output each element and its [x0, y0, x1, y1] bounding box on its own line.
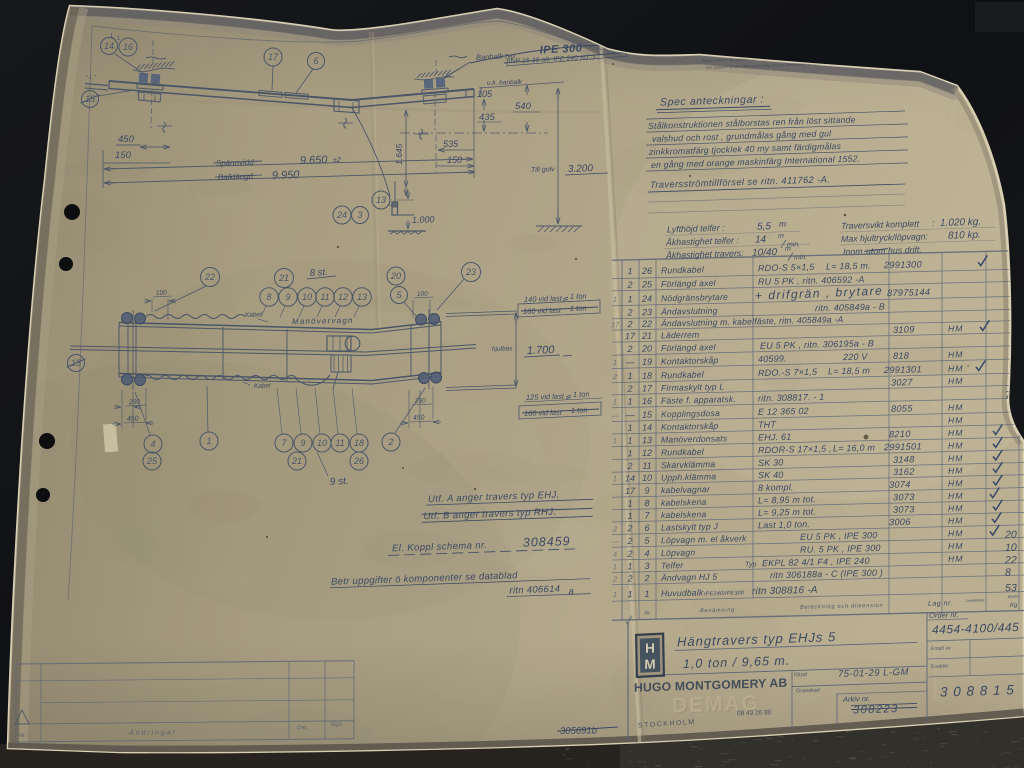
svg-text:2: 2	[626, 574, 632, 584]
svg-text:Benämning: Benämning	[700, 607, 735, 614]
svg-text:kabelskena: kabelskena	[661, 509, 706, 520]
svg-text:17: 17	[642, 383, 653, 393]
svg-text:8 kompl.: 8 kompl.	[758, 482, 794, 493]
svg-text:1 ton: 1 ton	[573, 389, 590, 399]
svg-text:Löpvagn: Löpvagn	[661, 547, 695, 558]
svg-text:ritn 406614: ritn 406614	[509, 584, 560, 597]
svg-text:2: 2	[626, 523, 632, 533]
svg-text:Ersatt av: Ersatt av	[931, 645, 951, 652]
svg-text:5,5: 5,5	[757, 221, 771, 232]
svg-text:4: 4	[613, 550, 617, 559]
svg-text:14: 14	[642, 422, 652, 432]
svg-text:Kopplingsdosa: Kopplingsdosa	[661, 408, 720, 419]
svg-text:Rundkabel: Rundkabel	[661, 264, 705, 275]
svg-text:Lag nr.: Lag nr.	[928, 600, 953, 608]
svg-text:Skarvklämma: Skarvklämma	[661, 459, 715, 470]
svg-text:17: 17	[625, 331, 636, 341]
svg-text:53: 53	[1005, 582, 1017, 594]
svg-text:L= 18,5 m.: L= 18,5 m.	[826, 261, 871, 272]
svg-text:Kabel: Kabel	[245, 311, 262, 319]
svg-text:1: 1	[613, 474, 617, 483]
svg-text:1: 1	[613, 436, 617, 445]
svg-text:HM: HM	[948, 440, 963, 450]
svg-text:1.700: 1.700	[527, 344, 556, 357]
svg-text:20: 20	[390, 271, 401, 281]
svg-text:308459: 308459	[523, 534, 571, 550]
svg-text:20: 20	[641, 343, 652, 353]
svg-text:Levereras: Levereras	[966, 597, 986, 602]
svg-text:1: 1	[613, 562, 617, 571]
svg-text:RU. 5 PK , IPE 300: RU. 5 PK , IPE 300	[800, 543, 881, 555]
svg-text:—: —	[625, 410, 636, 420]
svg-text:Lastskylt typ J: Lastskylt typ J	[661, 521, 718, 532]
svg-text:HM: HM	[948, 428, 963, 438]
svg-text:8210: 8210	[889, 429, 911, 440]
svg-text:2: 2	[626, 307, 632, 317]
svg-text:2991301: 2991301	[883, 364, 922, 375]
svg-text:Kontaktorskåp: Kontaktorskåp	[661, 421, 719, 432]
svg-text:8: 8	[1005, 567, 1011, 579]
svg-text:4: 4	[644, 548, 649, 558]
svg-text:810 kp.: 810 kp.	[948, 230, 981, 242]
svg-text:6: 6	[313, 56, 318, 66]
svg-text:1 ton: 1 ton	[570, 291, 587, 301]
svg-text:RDO-S 5×1,5: RDO-S 5×1,5	[758, 262, 815, 273]
svg-text:2: 2	[626, 319, 632, 329]
svg-text:HM: HM	[948, 503, 963, 513]
svg-text:2: 2	[626, 384, 632, 394]
svg-text:u.k. banbalk: u.k. banbalk	[487, 79, 523, 87]
svg-text:Upph.klämma: Upph.klämma	[661, 471, 716, 482]
svg-text:10: 10	[642, 473, 652, 483]
svg-text:THT: THT	[758, 419, 777, 429]
svg-text:1: 1	[627, 435, 632, 445]
svg-text:1.000: 1.000	[412, 214, 435, 225]
svg-text:Till golv: Till golv	[531, 166, 555, 174]
svg-text:HM: HM	[948, 491, 963, 501]
svg-text:9: 9	[300, 438, 305, 448]
svg-text:9: 9	[285, 292, 290, 302]
svg-text:Läderrem: Läderrem	[661, 330, 699, 341]
svg-text:Kg: Kg	[1010, 603, 1018, 609]
svg-text:Order nr.: Order nr.	[929, 610, 959, 620]
svg-text:220 V: 220 V	[842, 352, 868, 363]
svg-text:3.200: 3.200	[568, 163, 594, 175]
svg-text:SK 40: SK 40	[758, 470, 784, 481]
svg-text:Ersätter: Ersätter	[931, 663, 949, 670]
svg-text:kabelvagnar: kabelvagnar	[661, 484, 711, 495]
svg-text:14: 14	[755, 234, 767, 245]
svg-text:Nödgränsbrytare: Nödgränsbrytare	[661, 292, 728, 304]
svg-text:9: 9	[644, 486, 649, 496]
svg-text:8055: 8055	[891, 403, 913, 414]
svg-text:13: 13	[357, 292, 367, 302]
svg-text:HM: HM	[948, 465, 963, 475]
svg-text:2: 2	[612, 575, 618, 584]
svg-text:2: 2	[626, 461, 632, 471]
svg-text:1: 1	[627, 423, 632, 433]
svg-text:1: 1	[627, 396, 632, 406]
svg-text:Rundkabel: Rundkabel	[661, 369, 705, 380]
svg-text:21: 21	[641, 331, 652, 341]
svg-text:1: 1	[627, 294, 632, 304]
svg-text:1: 1	[627, 266, 632, 276]
svg-text:2: 2	[626, 549, 632, 559]
svg-text:Ritad: Ritad	[794, 672, 807, 678]
svg-text:1: 1	[627, 448, 632, 458]
svg-text:23: 23	[465, 267, 476, 277]
svg-text:Brutto: Brutto	[1008, 594, 1019, 599]
svg-text:9.950: 9.950	[272, 169, 301, 182]
svg-text:435: 435	[479, 112, 496, 123]
svg-text:IPE240/IPE300: IPE240/IPE300	[704, 590, 745, 597]
svg-text:L= 9,25 m tot.: L= 9,25 m tot.	[758, 507, 816, 518]
svg-text:540: 540	[515, 101, 532, 112]
svg-text:hjulbas: hjulbas	[492, 345, 514, 353]
svg-text:Dat.: Dat.	[297, 725, 308, 731]
svg-text:305691b: 305691b	[560, 725, 597, 737]
svg-text:18: 18	[354, 438, 364, 448]
svg-text:2: 2	[612, 372, 618, 381]
svg-text:Nr: Nr	[19, 733, 25, 739]
svg-text:9.650: 9.650	[300, 154, 329, 167]
svg-text:Sign.: Sign.	[330, 722, 344, 728]
svg-text:26: 26	[353, 456, 364, 466]
svg-text:Manövervagn: Manövervagn	[292, 316, 354, 326]
svg-text:Arkiv nr.: Arkiv nr.	[842, 694, 870, 704]
svg-text:4: 4	[150, 439, 155, 449]
svg-text:450: 450	[118, 134, 135, 145]
svg-text:Manöverdonsats: Manöverdonsats	[661, 433, 728, 445]
svg-text:HM: HM	[948, 541, 963, 551]
svg-text:21: 21	[278, 273, 289, 283]
svg-text:Ä n d r i n g a r: Ä n d r i n g a r	[128, 728, 176, 736]
svg-text:2991300: 2991300	[883, 259, 922, 270]
svg-text:14: 14	[104, 41, 114, 51]
svg-text:10: 10	[317, 438, 327, 448]
svg-text:HM: HM	[948, 554, 963, 564]
svg-text:40599.: 40599.	[758, 353, 787, 364]
svg-text:3162: 3162	[893, 467, 915, 478]
svg-text:L= 18,5 m: L= 18,5 m	[828, 365, 870, 376]
svg-text:2: 2	[387, 437, 393, 447]
svg-text:3148: 3148	[893, 454, 915, 465]
svg-text:1: 1	[117, 36, 120, 42]
svg-text:20: 20	[1004, 529, 1017, 541]
svg-text:1: 1	[613, 358, 617, 367]
svg-text:150: 150	[115, 150, 132, 161]
svg-text:16: 16	[642, 396, 652, 406]
svg-text:Lyfthöjd telfer :: Lyfthöjd telfer :	[667, 223, 725, 235]
svg-text:2: 2	[626, 344, 632, 354]
svg-text:Rundkabel: Rundkabel	[661, 447, 705, 458]
svg-text:1: 1	[627, 371, 632, 381]
svg-text:17: 17	[268, 52, 279, 62]
svg-text:Kontaktorskåp: Kontaktorskåp	[661, 355, 719, 366]
svg-text:E 12 365 02: E 12 365 02	[758, 406, 809, 417]
svg-text:17: 17	[611, 320, 620, 329]
svg-text:" L ": " L "	[86, 75, 97, 81]
svg-text:8: 8	[266, 292, 271, 302]
svg-text:19: 19	[642, 357, 652, 367]
svg-text:M: M	[644, 657, 655, 672]
svg-text:m: m	[785, 246, 791, 253]
svg-text:4454-4100/445: 4454-4100/445	[932, 620, 1019, 637]
svg-text:23: 23	[641, 307, 652, 317]
svg-text:Kabel: Kabel	[254, 382, 271, 390]
svg-text:—: —	[610, 411, 619, 420]
svg-text:1: 1	[644, 589, 649, 599]
svg-text:13: 13	[642, 435, 652, 445]
svg-text:3: 3	[357, 210, 362, 220]
svg-text:L= 16,0 m: L= 16,0 m	[833, 443, 875, 454]
svg-text:250: 250	[414, 397, 427, 405]
svg-text:1: 1	[627, 561, 632, 571]
svg-text:Last 1,0 ton.: Last 1,0 ton.	[758, 519, 810, 530]
svg-text:10: 10	[302, 292, 312, 302]
svg-text:Granskad: Granskad	[796, 688, 820, 695]
svg-text:Ändvagn HJ 5: Ändvagn HJ 5	[660, 572, 717, 583]
svg-text:Huvudbalk: Huvudbalk	[661, 587, 704, 598]
svg-text:24: 24	[336, 210, 347, 220]
svg-text:1: 1	[206, 436, 211, 446]
svg-text:25: 25	[146, 456, 158, 466]
svg-text:ritn 308816 -A: ritn 308816 -A	[752, 585, 818, 598]
svg-text:818: 818	[893, 351, 910, 361]
svg-text:11: 11	[642, 461, 651, 471]
svg-text:1: 1	[627, 589, 632, 599]
svg-text:25: 25	[641, 279, 653, 289]
svg-text:HM ': HM '	[948, 363, 969, 374]
svg-text:2: 2	[626, 536, 632, 546]
svg-text:18: 18	[642, 371, 652, 381]
svg-text:3 0 8 8 1 5: 3 0 8 8 1 5	[940, 682, 1015, 699]
svg-text:1: 1	[613, 590, 617, 599]
svg-text:12: 12	[642, 448, 652, 458]
svg-text:m: m	[778, 233, 784, 240]
svg-text:HM: HM	[948, 376, 963, 386]
svg-text:15: 15	[642, 410, 653, 420]
svg-text:10: 10	[1005, 542, 1017, 554]
svg-text:12: 12	[338, 292, 348, 302]
svg-text:kabelskena: kabelskena	[661, 497, 706, 508]
svg-text:HM: HM	[948, 349, 963, 359]
svg-text:Ändavslutning: Ändavslutning	[660, 305, 718, 316]
svg-text:3027: 3027	[891, 377, 913, 388]
svg-text:H: H	[645, 641, 655, 656]
svg-text:1: 1	[627, 499, 632, 509]
svg-text:EHJ. 61: EHJ. 61	[758, 432, 791, 443]
svg-text:Nr: Nr	[644, 610, 650, 616]
svg-text:—: —	[610, 537, 619, 546]
svg-text:22: 22	[641, 319, 652, 329]
svg-text:9 st.: 9 st.	[329, 476, 349, 488]
svg-text:RDO.-S 7×1,5: RDO.-S 7×1,5	[758, 367, 818, 378]
svg-text:22: 22	[1004, 554, 1017, 566]
svg-text:16: 16	[123, 42, 133, 52]
svg-text:21: 21	[291, 456, 302, 466]
svg-text:100: 100	[156, 289, 168, 297]
svg-text:RDOR-S 17×1,5 ,: RDOR-S 17×1,5 ,	[758, 444, 832, 456]
svg-text:HM: HM	[948, 453, 963, 463]
svg-text:3109: 3109	[893, 324, 915, 335]
svg-text:Förlängd axel: Förlängd axel	[661, 342, 717, 353]
svg-text:26: 26	[641, 266, 652, 276]
svg-text:HM: HM	[948, 516, 963, 526]
svg-text:1: 1	[613, 397, 617, 406]
svg-text:ritn. 308817. - 1: ritn. 308817. - 1	[758, 392, 824, 404]
svg-text:22: 22	[204, 272, 215, 282]
svg-text:—: —	[625, 357, 636, 367]
svg-text:HM: HM	[948, 478, 963, 488]
svg-text:HM: HM	[948, 323, 963, 333]
svg-text:3006: 3006	[889, 517, 911, 528]
svg-text:Förlängd axel: Förlängd axel	[661, 278, 717, 289]
svg-text:3073: 3073	[893, 492, 915, 503]
svg-text:535: 535	[443, 139, 459, 149]
svg-text:8: 8	[644, 498, 649, 508]
svg-text:±2: ±2	[333, 157, 341, 164]
svg-text:a: a	[568, 586, 574, 597]
svg-text:Firmaskylt typ L: Firmaskylt typ L	[661, 382, 724, 393]
svg-text:1: 1	[627, 511, 632, 521]
svg-text:1.645: 1.645	[394, 143, 404, 165]
svg-text:87975144: 87975144	[887, 287, 930, 298]
svg-text:HM: HM	[948, 402, 963, 412]
svg-text:450: 450	[127, 415, 139, 423]
svg-text:L= 8,95 m tot.: L= 8,95 m tot.	[758, 494, 816, 505]
svg-text:2: 2	[626, 280, 632, 290]
svg-text:17: 17	[625, 486, 636, 496]
svg-text:HM: HM	[948, 415, 963, 425]
svg-text:2: 2	[643, 573, 649, 583]
svg-text:2: 2	[612, 524, 618, 533]
svg-text:Fäste f. apparatsk.: Fäste f. apparatsk.	[661, 394, 736, 406]
svg-text:14: 14	[625, 473, 635, 483]
svg-text:3074: 3074	[889, 479, 911, 490]
svg-text:11: 11	[335, 438, 344, 448]
svg-text:Typ: Typ	[745, 561, 757, 568]
svg-text:75-01-29 L-GM: 75-01-29 L-GM	[838, 667, 909, 680]
svg-text:ritn. 405849a - B: ritn. 405849a - B	[815, 302, 885, 314]
svg-text:1: 1	[613, 295, 617, 304]
svg-text:2991501: 2991501	[883, 441, 922, 452]
svg-text:105: 105	[477, 89, 493, 99]
svg-text:450: 450	[413, 414, 425, 422]
svg-text:11: 11	[320, 292, 329, 302]
svg-text:3: 3	[644, 561, 649, 571]
svg-text:Telfer: Telfer	[661, 560, 684, 571]
svg-text:EU 5 PK , IPE 300: EU 5 PK , IPE 300	[800, 530, 877, 542]
svg-text:3073: 3073	[893, 504, 915, 515]
svg-text:6: 6	[644, 523, 649, 533]
svg-text:24: 24	[641, 294, 652, 304]
svg-text:08 49 26 80: 08 49 26 80	[737, 709, 772, 717]
svg-text:HM: HM	[948, 528, 963, 538]
svg-text:13: 13	[376, 195, 386, 205]
svg-text:1.020 kg.: 1.020 kg.	[940, 217, 981, 229]
svg-text:m: m	[779, 219, 786, 229]
svg-text:Löpvagn m. el åkverk: Löpvagn m. el åkverk	[661, 533, 747, 545]
svg-text:SK 30: SK 30	[758, 457, 784, 468]
svg-text:100: 100	[417, 290, 429, 298]
